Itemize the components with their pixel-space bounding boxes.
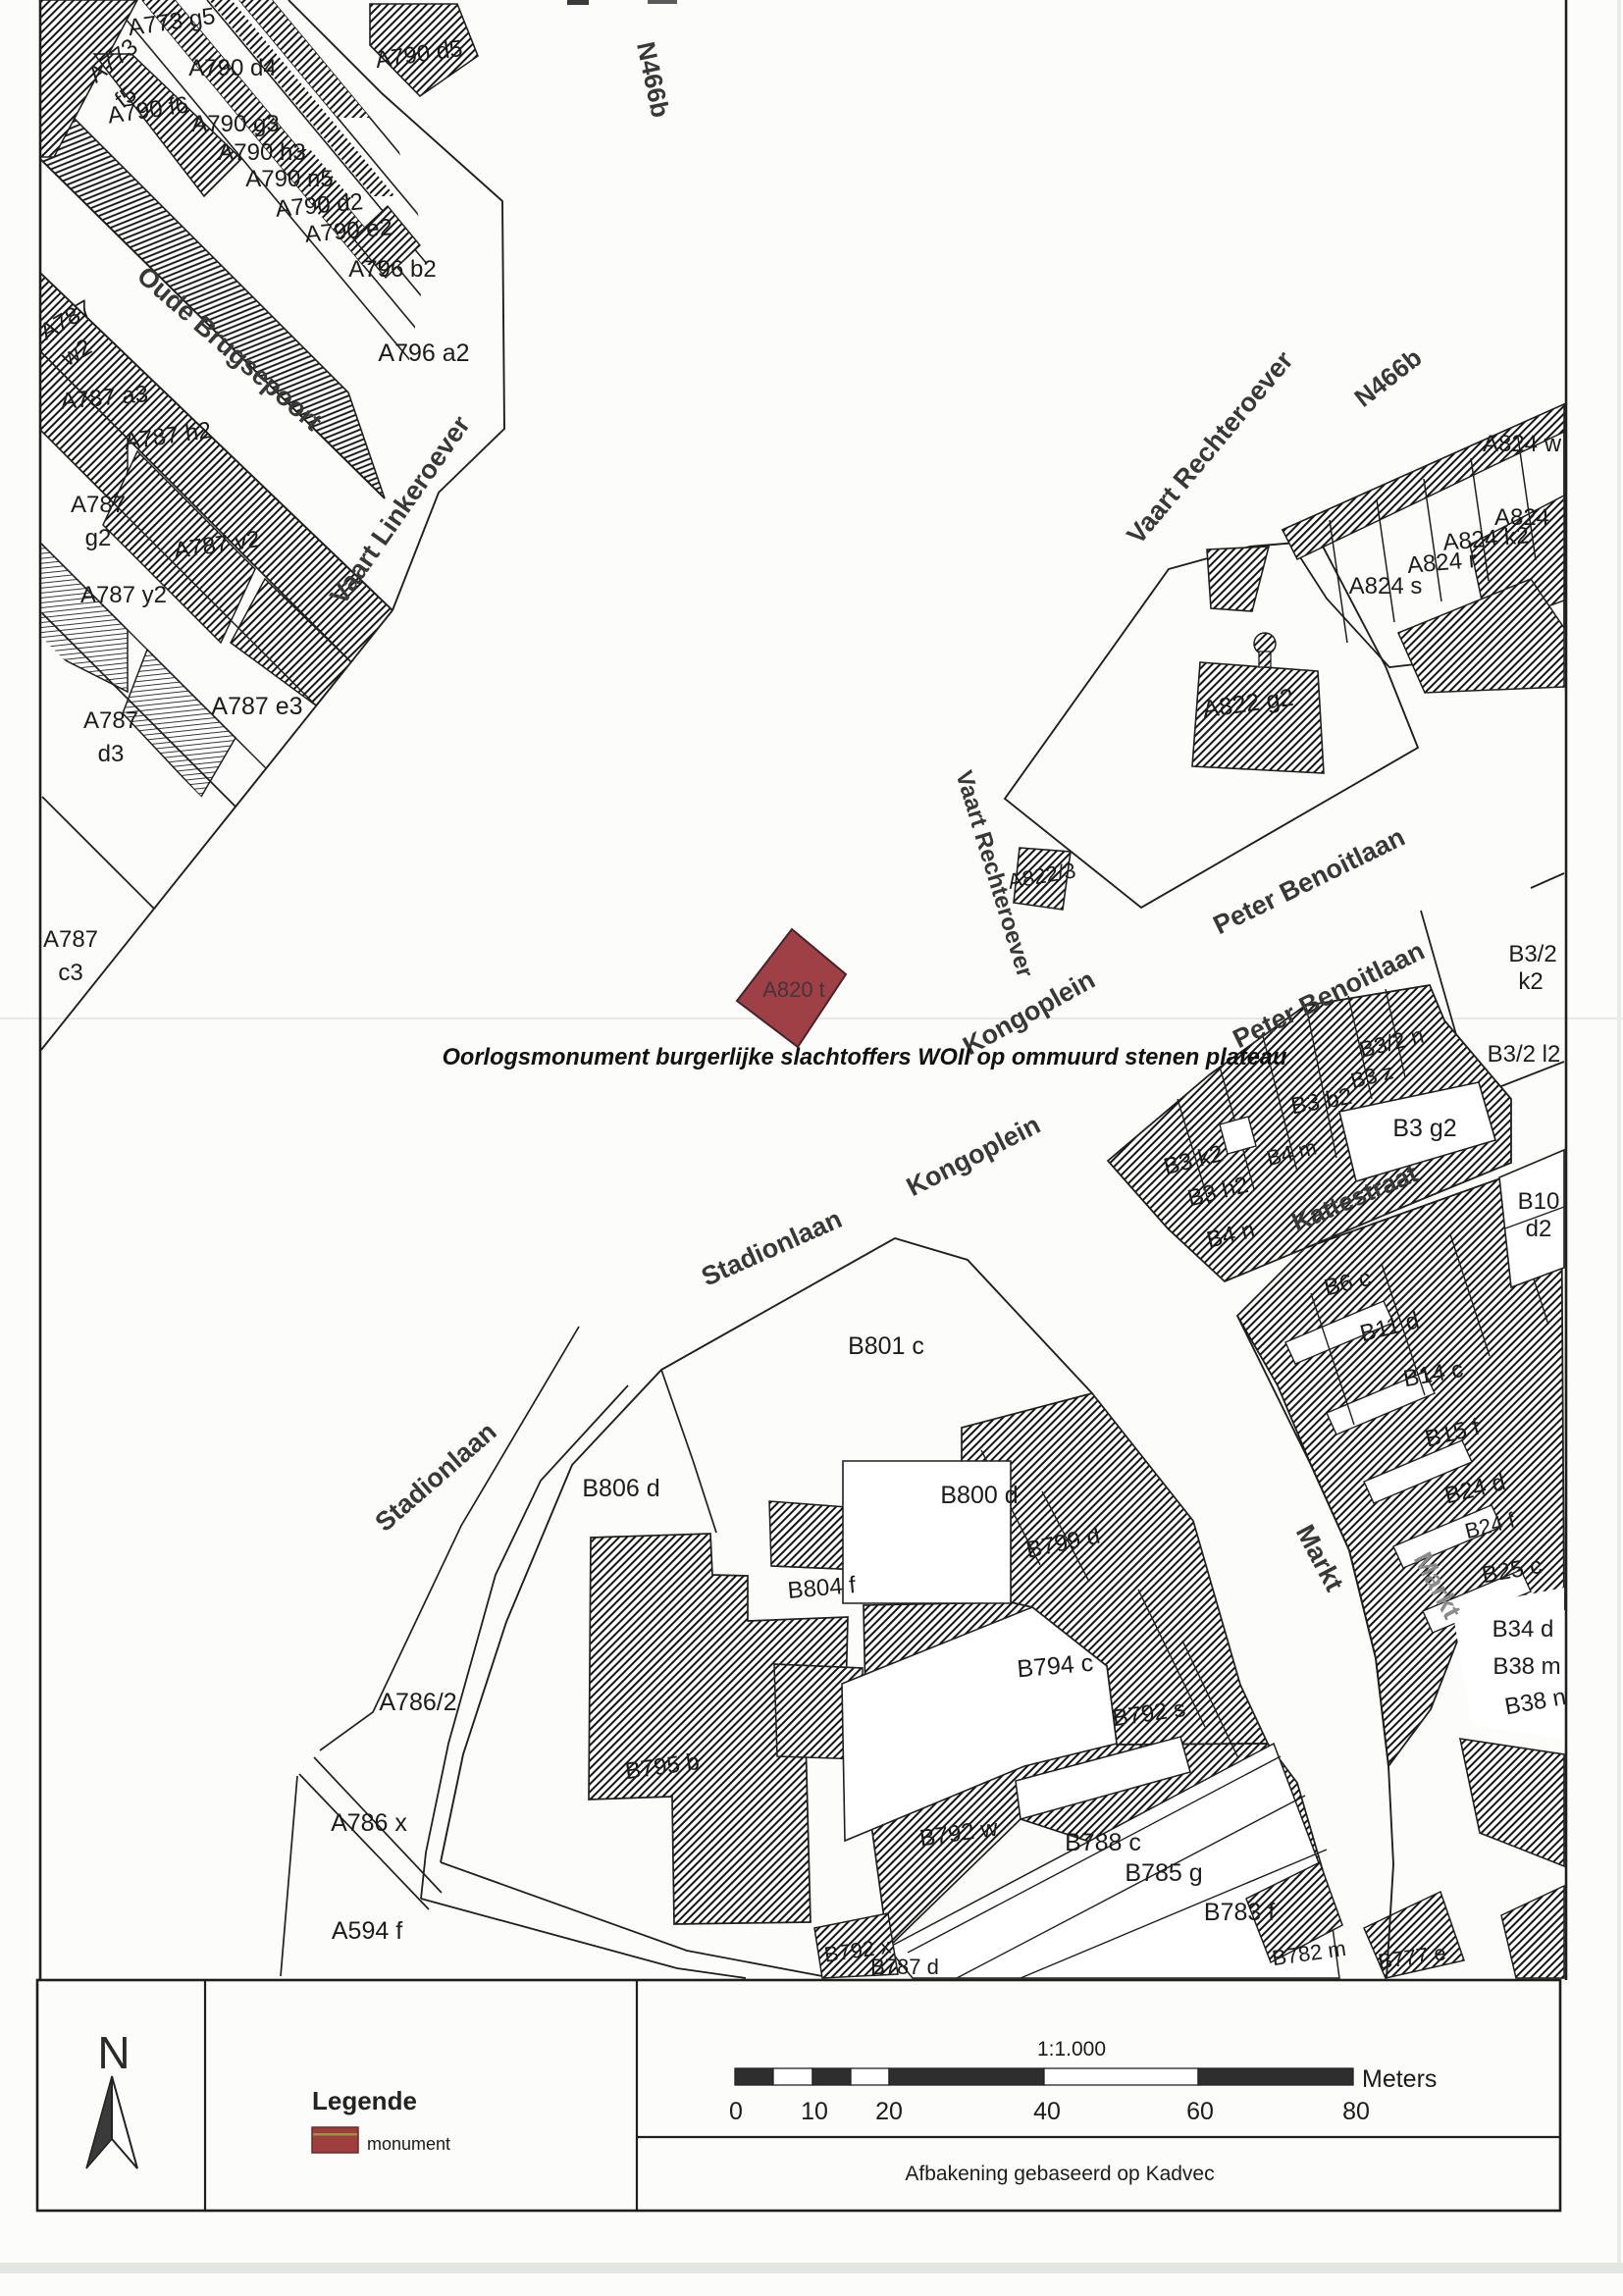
- svg-text:A787: A787: [71, 492, 126, 518]
- svg-text:d3: d3: [98, 741, 125, 767]
- svg-text:80: 80: [1342, 2098, 1370, 2125]
- svg-text:d2: d2: [1526, 1216, 1552, 1242]
- svg-text:A594 f: A594 f: [332, 1917, 402, 1945]
- svg-text:1:1.000: 1:1.000: [1037, 2038, 1106, 2061]
- svg-text:B806 d: B806 d: [582, 1475, 659, 1502]
- svg-text:B3/2: B3/2: [1508, 941, 1556, 967]
- svg-text:A796 b2: A796 b2: [348, 256, 436, 283]
- svg-text:A790 g3: A790 g3: [191, 111, 279, 137]
- svg-text:B3 g2: B3 g2: [1392, 1115, 1456, 1142]
- svg-text:B34 d: B34 d: [1492, 1616, 1554, 1643]
- svg-text:B800 d: B800 d: [940, 1482, 1018, 1509]
- svg-text:Afbakening gebaseerd op Kadvec: Afbakening gebaseerd op Kadvec: [905, 2163, 1214, 2185]
- svg-text:B38 m: B38 m: [1492, 1653, 1560, 1680]
- svg-text:g2: g2: [85, 525, 112, 551]
- svg-text:Oorlogsmonument burgerlijke sl: Oorlogsmonument burgerlijke slachtoffers…: [443, 1045, 1287, 1070]
- svg-text:k2: k2: [1518, 968, 1543, 995]
- svg-text:60: 60: [1186, 2098, 1214, 2125]
- svg-text:c3: c3: [58, 960, 82, 986]
- svg-text:A790 n5: A790 n5: [245, 166, 333, 192]
- svg-text:0: 0: [729, 2098, 743, 2125]
- svg-text:10: 10: [801, 2098, 828, 2125]
- svg-text:A790 d4: A790 d4: [188, 55, 276, 81]
- svg-text:40: 40: [1033, 2098, 1061, 2125]
- svg-text:B788 c: B788 c: [1065, 1829, 1141, 1856]
- svg-text:B10: B10: [1518, 1188, 1560, 1215]
- svg-text:A787 y2: A787 y2: [80, 582, 167, 608]
- svg-text:A786 x: A786 x: [331, 1809, 407, 1837]
- svg-text:Legende: Legende: [312, 2086, 417, 2115]
- svg-text:A790 h3: A790 h3: [218, 139, 305, 166]
- svg-text:A787: A787: [43, 926, 98, 953]
- svg-text:A786/2: A786/2: [379, 1689, 456, 1716]
- svg-text:B783 f: B783 f: [1204, 1899, 1275, 1926]
- svg-text:B785 g: B785 g: [1125, 1859, 1202, 1887]
- svg-text:A787: A787: [83, 707, 138, 734]
- svg-text:N: N: [97, 2027, 130, 2078]
- svg-text:B801 c: B801 c: [848, 1332, 924, 1360]
- svg-text:A824 w: A824 w: [1483, 431, 1562, 457]
- svg-text:B787 d: B787 d: [870, 1955, 939, 1979]
- svg-text:A787 e3: A787 e3: [211, 693, 302, 720]
- svg-text:A796 a2: A796 a2: [378, 339, 469, 367]
- svg-text:A820 t: A820 t: [762, 977, 825, 1002]
- svg-text:B3/2 l2: B3/2 l2: [1488, 1041, 1561, 1068]
- svg-text:20: 20: [875, 2098, 903, 2125]
- svg-text:monument: monument: [367, 2134, 450, 2154]
- svg-text:A824 s: A824 s: [1349, 573, 1423, 600]
- svg-text:Meters: Meters: [1362, 2065, 1437, 2093]
